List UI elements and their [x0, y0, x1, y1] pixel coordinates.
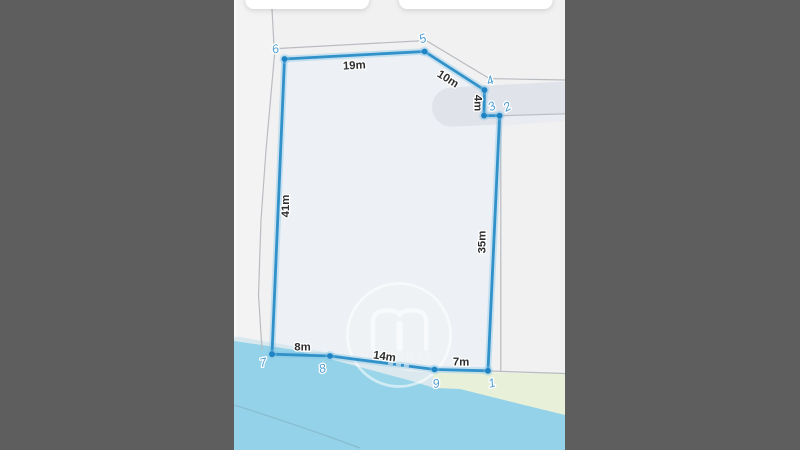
- svg-text:8m: 8m: [294, 342, 310, 354]
- svg-text:35m: 35m: [477, 231, 489, 254]
- svg-text:19m: 19m: [343, 59, 366, 72]
- svg-text:41m: 41m: [280, 195, 292, 218]
- svg-text:4m: 4m: [472, 95, 484, 111]
- svg-text:7m: 7m: [453, 356, 470, 368]
